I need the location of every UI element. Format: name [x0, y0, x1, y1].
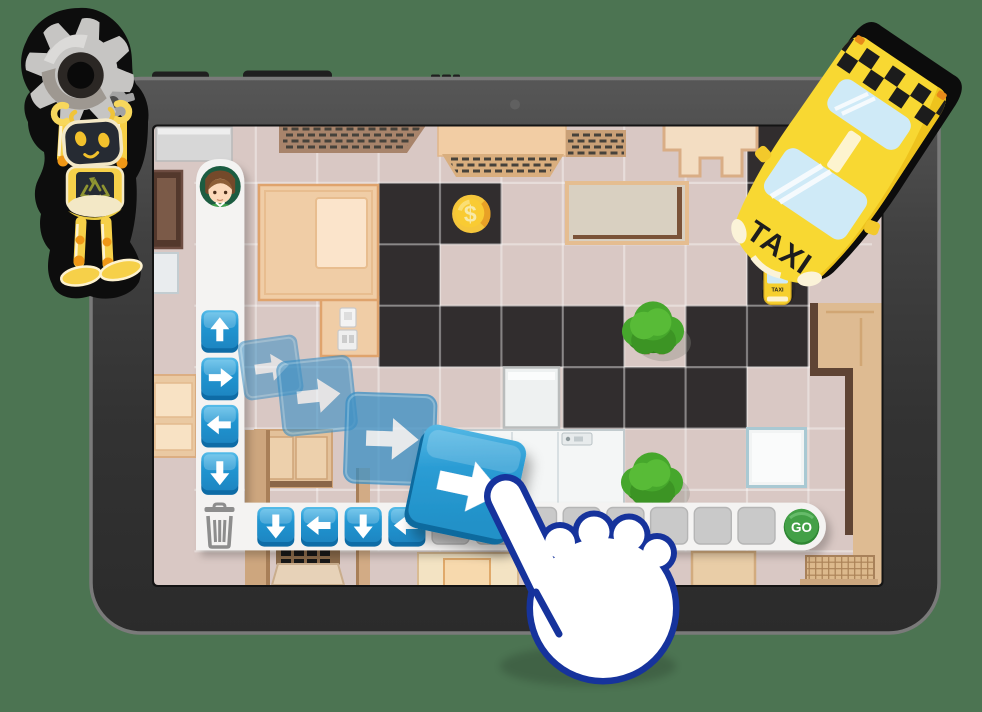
svg-text:$: $ [464, 201, 477, 227]
svg-text:TAXI: TAXI [771, 288, 784, 294]
svg-text:GO: GO [791, 520, 812, 535]
